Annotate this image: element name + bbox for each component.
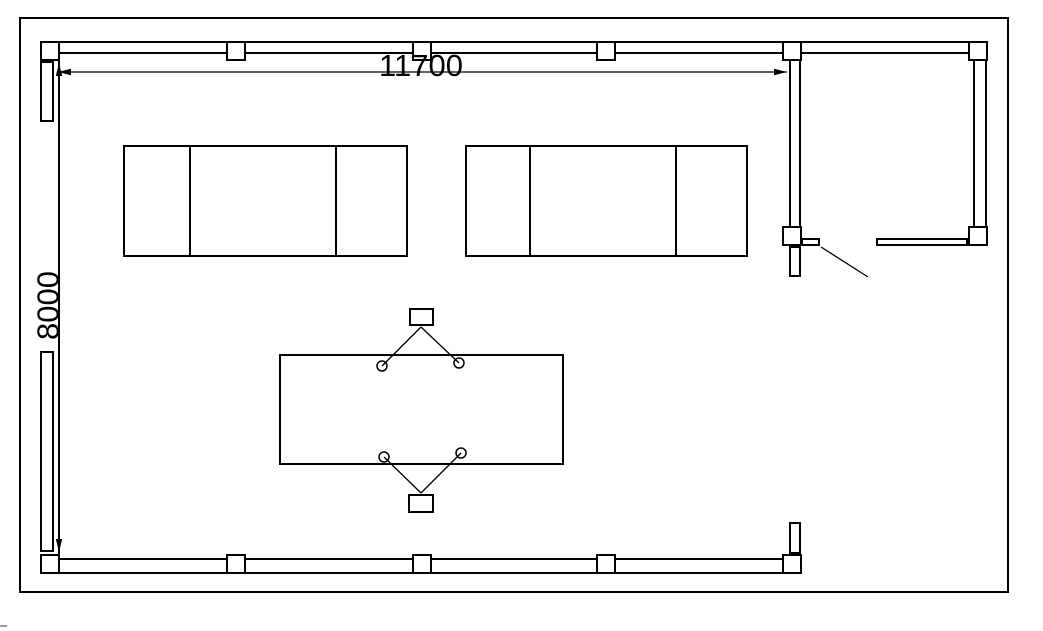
vestibule-left-wall-inner-line: [799, 54, 801, 227]
bottom-right-pier: [789, 522, 801, 554]
chair-bottom: [408, 494, 434, 513]
bench-unit-2-divider: [529, 146, 531, 256]
wall-column: [968, 226, 988, 246]
wall-column: [40, 41, 60, 61]
door-column: [782, 226, 802, 246]
wall-column: [40, 554, 60, 574]
left-wall-pier-lower: [40, 351, 54, 552]
wall-column: [968, 41, 988, 61]
top-wall-outer-line: [40, 41, 988, 43]
wall-column: [226, 41, 246, 61]
left-wall-pier-upper: [40, 61, 54, 122]
bench-unit-1: [123, 145, 408, 257]
dim-label-width: 11700: [346, 50, 496, 81]
meeting-table: [279, 354, 564, 465]
door-jamb-pier: [789, 246, 801, 277]
wall-column: [226, 554, 246, 574]
wall-column: [596, 41, 616, 61]
wall-column: [782, 41, 802, 61]
wall-column: [596, 554, 616, 574]
vestibule-right-wall-inner-line: [985, 54, 987, 227]
dim-label-height: 8000: [33, 265, 64, 347]
screen-artifact-mark: [0, 625, 7, 627]
door-stub: [801, 238, 820, 246]
bench-unit-1-divider: [189, 146, 191, 256]
chair-top: [409, 308, 434, 326]
drawing-frame: [19, 17, 1009, 593]
top-wall-inner-line: [40, 52, 988, 54]
wall-column: [412, 554, 432, 574]
bench-unit-2: [465, 145, 748, 257]
bench-unit-1-divider: [335, 146, 337, 256]
bench-unit-2-divider: [675, 146, 677, 256]
vestibule-right-wall-outer-line: [973, 54, 975, 227]
vestibule-left-wall-outer-line: [789, 54, 791, 227]
vestibule-return-wall: [876, 238, 968, 246]
wall-column: [782, 554, 802, 574]
